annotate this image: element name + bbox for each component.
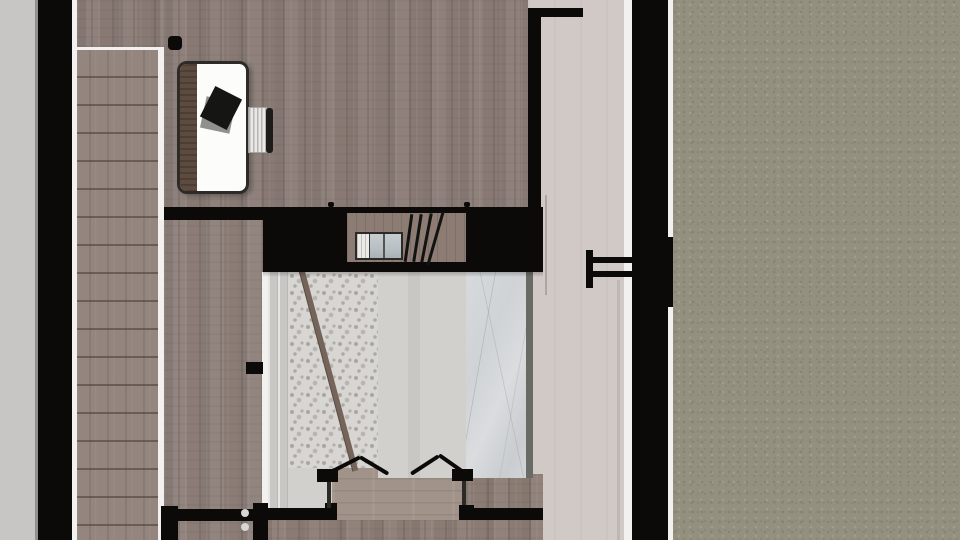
terrace-ground: [673, 0, 960, 540]
desk-wood-panel: [180, 64, 197, 191]
partition-strip-gray: [268, 272, 288, 512]
wall-bar: [266, 508, 330, 520]
exterior-strip-left: [0, 0, 35, 540]
staircase[interactable]: [77, 50, 158, 540]
door-jamb-block: [452, 469, 473, 481]
wall-stub-lower: [246, 362, 263, 374]
hallway-wall-edge: [545, 195, 547, 295]
door-jamb-block: [317, 469, 338, 482]
pebble-floor: [288, 272, 378, 468]
door-hardware-icon[interactable]: [593, 271, 632, 277]
wall-bar-bottom-right: [462, 508, 543, 520]
marble-panel: [466, 272, 526, 478]
marble-panel-frame: [526, 272, 533, 478]
light-gray-floor-seam: [408, 272, 420, 478]
wall-block: [161, 506, 178, 540]
stair-landing-floor: [77, 0, 164, 50]
door-hardware-icon[interactable]: [593, 257, 632, 263]
wall-right: [632, 0, 668, 540]
door-knob-icon: [241, 509, 249, 517]
wall-left: [38, 0, 72, 540]
appliance-louver: [357, 234, 369, 258]
marble-panel-edge: [456, 272, 466, 478]
office-chair-seat[interactable]: [248, 107, 267, 153]
office-bottom-wall: [164, 207, 263, 220]
appliance-glass-mullion: [383, 234, 385, 258]
floorplan-viewport[interactable]: [0, 0, 960, 540]
office-chair-back: [266, 108, 273, 153]
door-hardware-icon[interactable]: [586, 250, 593, 288]
door-pivot-dot-icon: [328, 202, 334, 207]
door-pivot-dot-icon: [464, 202, 470, 207]
wall-stub-top: [541, 8, 583, 17]
light-gray-floor: [378, 272, 466, 478]
hallway-floor-seam: [617, 280, 620, 540]
wall-end-hinge-icon: [168, 36, 182, 50]
wall-trim-right-inner: [624, 0, 632, 540]
stair-top-edge: [77, 47, 158, 50]
wall-band-shadow: [263, 272, 543, 277]
wall-column: [528, 8, 541, 207]
door-knob-icon: [241, 523, 249, 531]
appliance-glass: [369, 234, 401, 258]
